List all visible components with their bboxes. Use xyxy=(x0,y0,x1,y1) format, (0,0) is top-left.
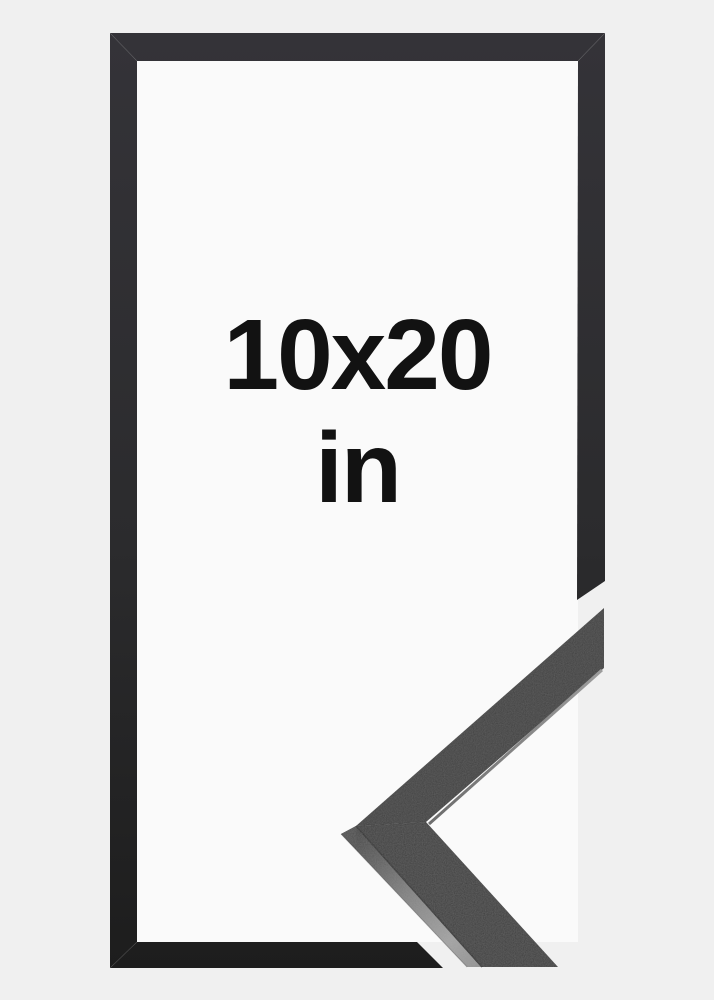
frame-border-left xyxy=(110,33,137,968)
frame-border-bottom xyxy=(110,942,443,968)
frame-unit-label: in xyxy=(137,412,578,525)
frame-border-right xyxy=(577,33,605,600)
frame-border-top xyxy=(110,33,605,61)
product-image-stage: 10x20 in xyxy=(0,0,714,1000)
frame-size-label: 10x20 xyxy=(137,299,578,412)
frame-size-label-block: 10x20 in xyxy=(137,299,578,525)
